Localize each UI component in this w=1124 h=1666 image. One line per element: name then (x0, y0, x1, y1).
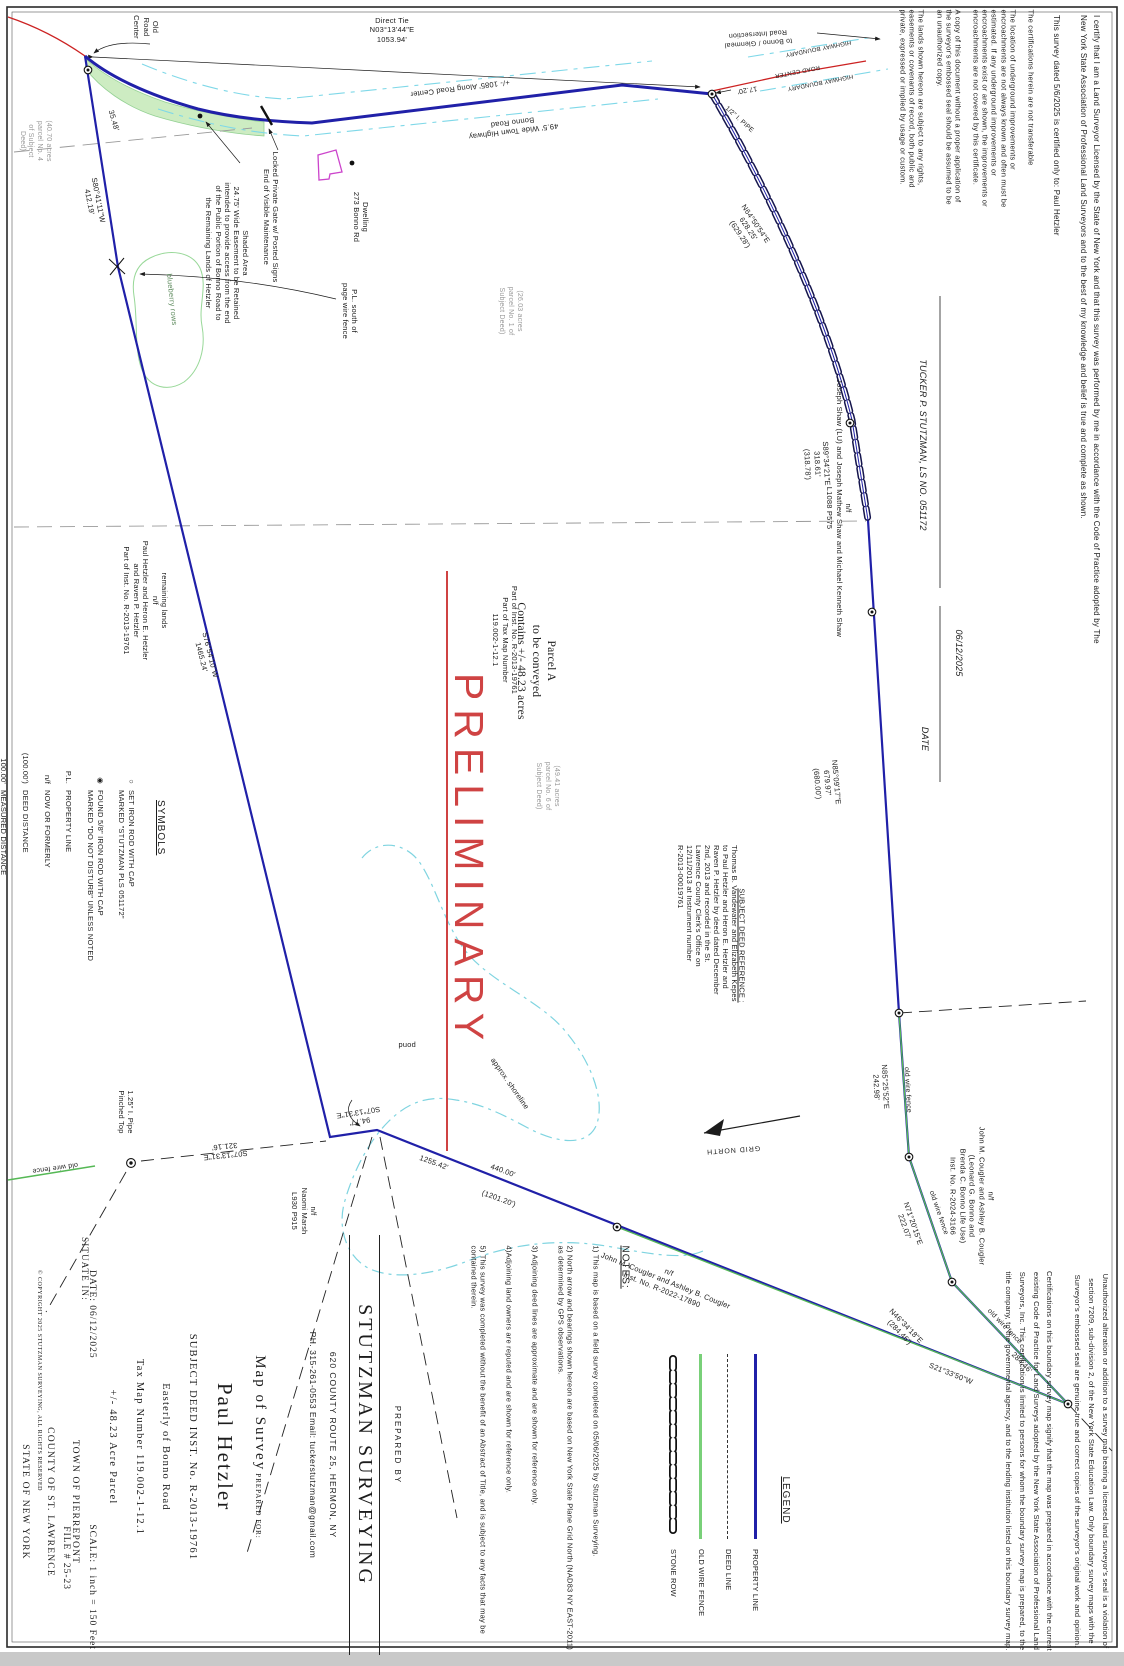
parcel-a-label: Parcel A to be conveyed Contains +/- 48.… (514, 576, 558, 746)
prepared-by-label: PREPARED BY (392, 1235, 402, 1655)
note-4: 4)Adjoining land owners are reputed and … (504, 1246, 513, 1656)
legend-label: PROPERTY LINE (751, 1549, 760, 1611)
dwelling-label: Dwelling 273 Bonno Rd (352, 181, 370, 253)
old-road-center-label: Old Road Center (132, 8, 160, 46)
direct-tie-line (93, 57, 700, 87)
certification-disclaimers: The certifications herein are not transf… (846, 10, 1036, 215)
firm-name: STUTZMAN SURVEYING (349, 1235, 380, 1655)
note-3: 3) Adjoining deed lines are approximate … (530, 1246, 539, 1656)
pl-abbrev: P.L. (64, 740, 73, 784)
deed-distance-example: (100.00') (21, 740, 30, 784)
location: Easterly of Bonno Road (159, 1237, 172, 1657)
legend-label: DEED LINE (724, 1549, 733, 1590)
parcel-26-label: (26.03 acres parcel No. 1 of Subject Dee… (495, 277, 523, 345)
remaining-lands-label: remaining lands n/f Paul Hetzler and Her… (122, 518, 169, 683)
shaded-area-label: Shaded Area 24.75' Wide Easement to be R… (202, 157, 250, 349)
legend-block: LEGEND PROPERTY LINE DEED LINE OLD WIRE … (672, 1354, 800, 1646)
signature-date: 06/12/2025 (952, 607, 964, 699)
file-number: FILE # 25-23 (60, 1270, 72, 1650)
date-field: DATE: 06/12/2025 (85, 1270, 97, 1359)
measured-distance-example: 100.00' (0, 740, 8, 784)
deed-lines-gray (14, 128, 866, 527)
bearing-n85b-label: N85°25'52"E 242.98' (870, 1055, 891, 1120)
nf-abbrev: n/f (42, 740, 51, 784)
owner-shaw-label: n/f Joseph Shaw (LU) and Joseph Mathew S… (823, 318, 853, 698)
found-rod-icon: ◉ (95, 740, 104, 784)
symbol-label: SET IRON ROD WITH CAP MARKED "STUTZMAN P… (117, 790, 136, 919)
firm-phone: PH. 315-261-0553 Email: tuckerstutzman@g… (307, 1235, 318, 1655)
parcel-49-label: (49.41 acres parcel No. 6 of Subject Dee… (532, 752, 560, 820)
tax-map: Tax Map Number 119.002-1-12.1 (133, 1237, 146, 1657)
admin-block: DATE: 06/12/2025 SCALE: 1 inch = 150 Fee… (16, 1270, 106, 1650)
easement-point (198, 114, 203, 119)
pond-label: pond (393, 1041, 421, 1050)
deed-line-swatch (727, 1354, 728, 1539)
map-of-survey: Map of Survey (252, 1355, 268, 1471)
legend-label: STONE ROW (669, 1549, 678, 1597)
note-5: 5) This survey was completed without the… (469, 1246, 488, 1656)
road-center-west (8, 17, 85, 56)
preliminary-watermark: PRELIMINARY (446, 571, 494, 1151)
dwelling-point (350, 161, 355, 166)
dwelling-outline (318, 150, 342, 180)
prepared-for: PREPARED FOR: (254, 1473, 262, 1538)
title-block: Map of Survey PREPARED FOR: Paul Hetzler… (112, 1237, 278, 1657)
symbol-label: FOUND 5/8" IRON ROD WITH CAP MARKED "DO … (86, 790, 105, 961)
certify-text: I certify that I am a Land Surveyor Lice… (1079, 15, 1102, 644)
deed-reference-body: Thomas B. Vandewater and Elizabeth Kepes… (675, 845, 739, 1055)
property-line-swatch (754, 1354, 757, 1539)
symbol-label: NOW OR FORMERLY (42, 790, 51, 868)
client-name: Paul Hetzler (212, 1237, 238, 1657)
legend-header: LEGEND (778, 1354, 791, 1646)
pond-shoreline (342, 845, 705, 1275)
symbols-header: SYMBOLS (153, 740, 166, 1040)
set-rod-icon: ○ (126, 740, 135, 784)
surveyor-name: TUCKER P. STUTZMAN, LS NO. 051172 (916, 300, 928, 590)
copyright: © COPYRIGHT 2025 STUTZMAN SURVEYING, ALL… (35, 1270, 43, 1650)
legend-label: OLD WIRE FENCE (696, 1549, 705, 1616)
note-2: 2) North arrow and bearings shown hereon… (556, 1246, 575, 1656)
prepared-by-block: PREPARED BY STUTZMAN SURVEYING 620 COUNT… (305, 1235, 411, 1655)
subject-deed: SUBJECT DEED INST. No. R-2013-19761 (186, 1237, 199, 1657)
certification-statement: I certify that I am a Land Surveyor Lice… (1039, 15, 1117, 655)
notes-header: NOTES: (618, 1246, 631, 1656)
parcel-40-label: (40.70 acres parcel No. 4 of Subject Dee… (14, 99, 52, 183)
symbol-label: MEASURED DISTANCE (0, 790, 8, 875)
symbols-block: SYMBOLS ○SET IRON ROD WITH CAP MARKED "S… (25, 740, 175, 1040)
pipe-125-label: 1.25" I. Pipe Pinched Top (117, 1080, 135, 1144)
scale-field: SCALE: 1 inch = 150 Feet (85, 1524, 97, 1650)
firm-address: 620 COUNTY ROUTE 25, HERMON, NY (327, 1235, 338, 1655)
date-label: DATE (918, 713, 930, 765)
notes-block: NOTES: 1) This map is based on a field s… (425, 1246, 640, 1656)
pl-south-label: P.L. south of page wire fence (341, 272, 359, 350)
old-wire-fence-swatch (700, 1354, 703, 1539)
north-arrow-icon (704, 1116, 800, 1136)
symbol-label: DEED DISTANCE (21, 790, 30, 853)
stone-row-swatch (667, 1354, 679, 1539)
symbol-label: PROPERTY LINE (64, 790, 73, 852)
certified-to-text: This survey dated 5/6/2025 is certified … (1052, 15, 1061, 236)
note-1: 1) This map is based on a field survey c… (591, 1246, 600, 1656)
acreage: +/- 48.23 Acre Parcel (106, 1237, 119, 1657)
unauthorized-alteration-text: Unauthorized alteration or addition to a… (868, 1267, 1112, 1655)
locked-gate-label: Locked Private Gate w/ Posted Signs End … (262, 142, 280, 292)
survey-sheet: Old Road Center Direct Tie N03°13'44"E 1… (0, 0, 1124, 1666)
direct-tie-label: Direct Tie N03°13'44"E 1053.94' (344, 16, 440, 46)
